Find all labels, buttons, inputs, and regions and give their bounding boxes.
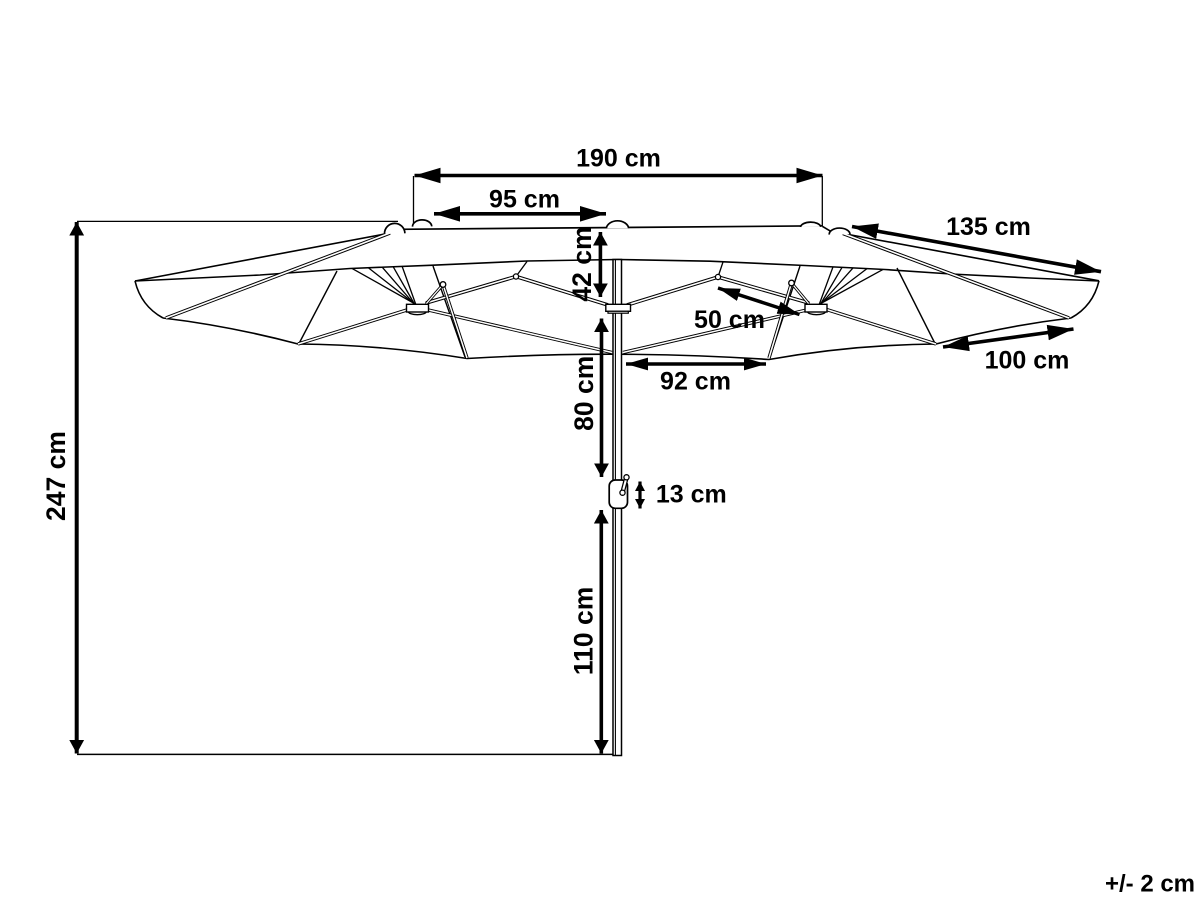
svg-text:110 cm: 110 cm	[569, 587, 599, 675]
svg-text:95 cm: 95 cm	[489, 186, 560, 214]
svg-text:100 cm: 100 cm	[985, 347, 1070, 375]
svg-text:50 cm: 50 cm	[694, 306, 765, 334]
svg-text:247 cm: 247 cm	[41, 431, 71, 521]
svg-text:92 cm: 92 cm	[660, 368, 731, 396]
svg-text:+/- 2 cm: +/- 2 cm	[1105, 871, 1195, 898]
svg-text:135 cm: 135 cm	[946, 213, 1031, 241]
svg-text:190 cm: 190 cm	[576, 145, 661, 173]
svg-text:80 cm: 80 cm	[569, 356, 599, 431]
svg-text:42 cm: 42 cm	[567, 226, 597, 301]
svg-text:13 cm: 13 cm	[656, 480, 727, 508]
